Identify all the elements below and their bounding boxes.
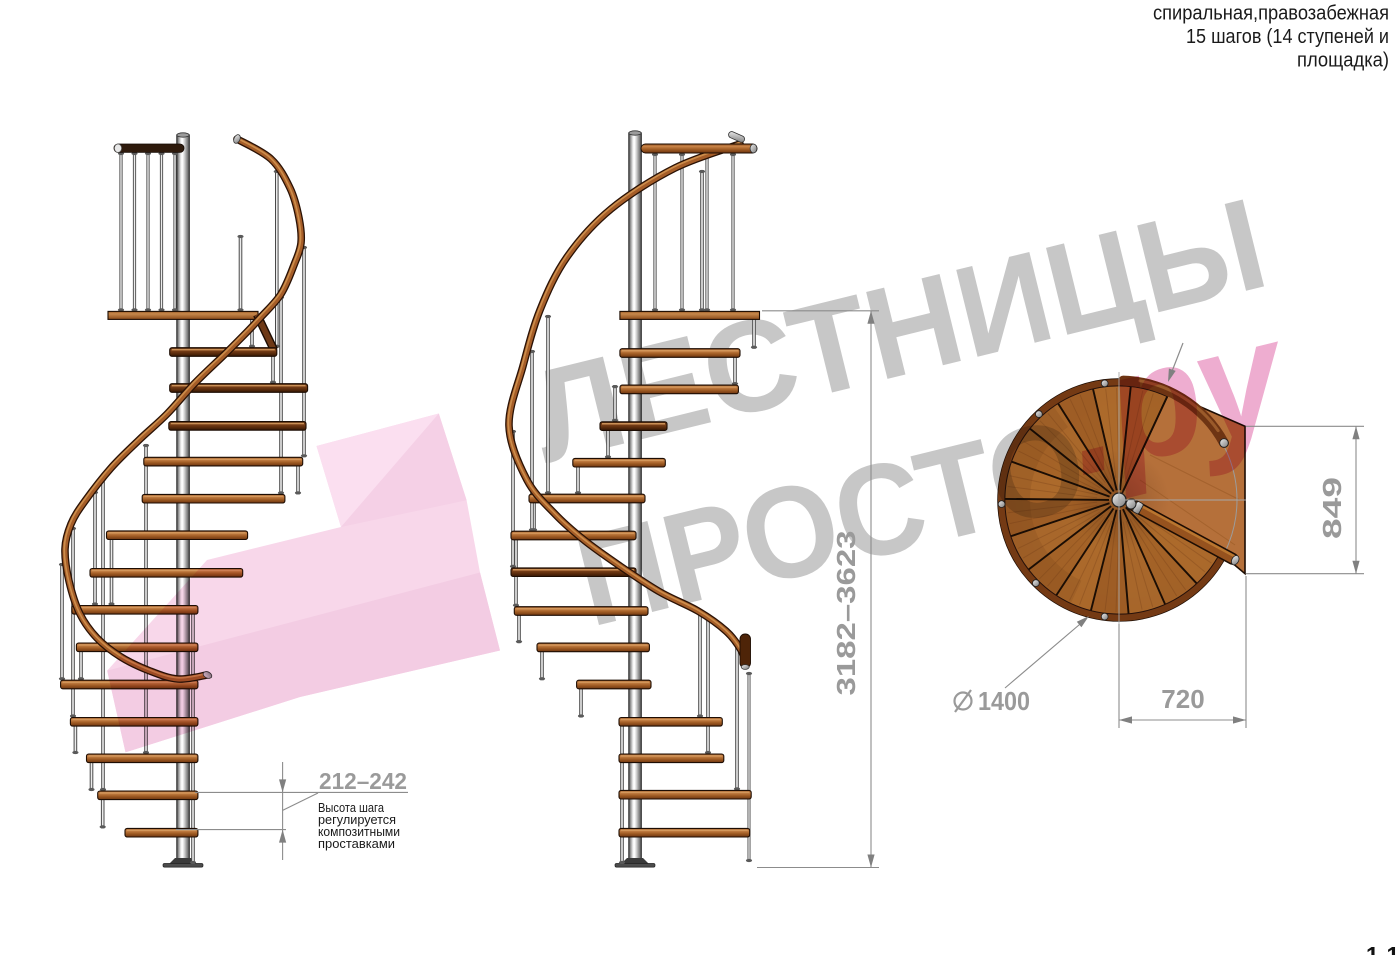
svg-text:1-15: 1-15	[1366, 942, 1400, 955]
svg-text:720: 720	[1161, 684, 1204, 714]
svg-text:849: 849	[1317, 477, 1347, 539]
svg-text:3182–3623: 3182–3623	[831, 531, 861, 696]
svg-text:проставками: проставками	[318, 836, 395, 851]
svg-text:спиральная,правозабежная: спиральная,правозабежная	[1153, 3, 1389, 25]
svg-text:1400: 1400	[978, 686, 1030, 716]
svg-text:площадка): площадка)	[1297, 49, 1389, 71]
svg-text:15 шагов (14 ступеней и: 15 шагов (14 ступеней и	[1186, 26, 1389, 48]
svg-text:212–242: 212–242	[319, 768, 407, 794]
